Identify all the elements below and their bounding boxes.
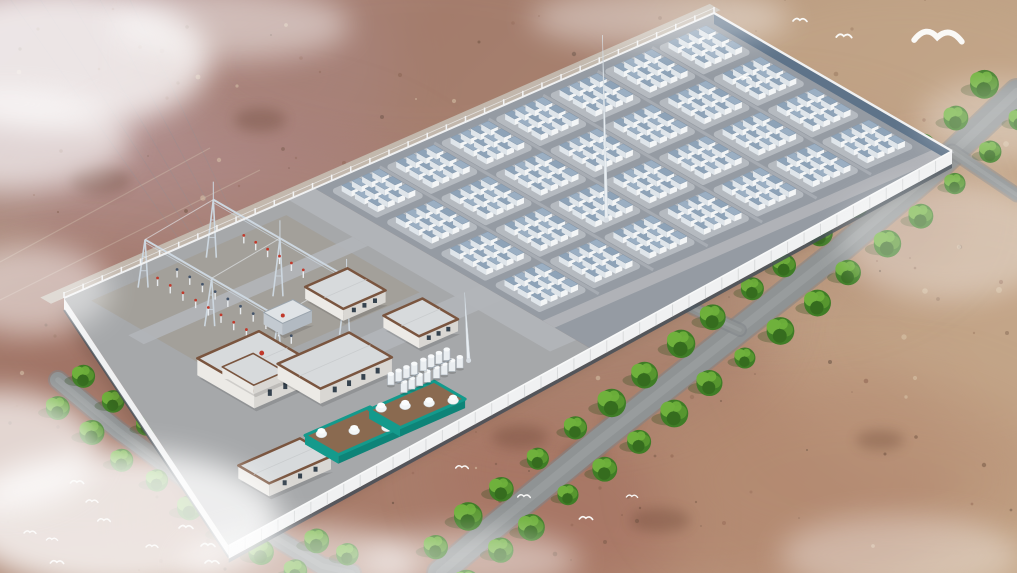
building-window	[427, 335, 431, 340]
storage-tank	[456, 355, 464, 371]
part	[569, 426, 581, 438]
part	[420, 358, 426, 362]
storage-tank-top	[377, 403, 385, 409]
part	[395, 369, 401, 373]
part	[602, 458, 611, 467]
fire-cart	[259, 351, 264, 356]
part	[478, 41, 481, 44]
part	[706, 372, 716, 382]
building-window	[373, 298, 377, 303]
part	[750, 279, 759, 288]
part	[428, 354, 434, 358]
part	[778, 264, 790, 276]
part	[201, 283, 204, 286]
part	[901, 334, 906, 339]
part	[77, 375, 89, 387]
building-window	[446, 327, 450, 332]
part	[169, 284, 172, 287]
part	[573, 418, 582, 427]
part	[884, 453, 887, 456]
storage-tank	[395, 369, 403, 385]
part	[728, 296, 730, 298]
storage-tank	[419, 358, 427, 374]
part	[636, 431, 645, 440]
part	[750, 491, 753, 494]
storage-tank-top	[449, 395, 457, 401]
building-window	[283, 480, 287, 485]
part	[851, 391, 853, 393]
building-window	[437, 331, 441, 336]
part	[220, 313, 223, 316]
part	[226, 298, 229, 301]
part	[598, 486, 601, 489]
building-window	[361, 374, 365, 380]
part	[810, 301, 823, 314]
part	[746, 287, 758, 299]
building-window	[347, 380, 351, 386]
part	[465, 504, 476, 515]
part	[1010, 509, 1013, 512]
part	[217, 158, 221, 162]
part	[834, 72, 839, 77]
part	[466, 358, 471, 363]
part	[156, 277, 159, 280]
storage-tank	[427, 354, 435, 370]
part	[188, 275, 191, 278]
part	[604, 401, 618, 415]
storage-tank	[387, 372, 395, 388]
part	[214, 290, 217, 293]
part	[637, 373, 650, 386]
scene-canvas	[0, 0, 1017, 573]
part	[436, 351, 442, 355]
part	[392, 502, 394, 504]
part	[841, 271, 854, 284]
part	[20, 371, 24, 375]
part	[254, 241, 257, 244]
dark-blotch	[234, 108, 286, 132]
part	[235, 84, 238, 87]
part	[415, 98, 417, 100]
part	[81, 366, 90, 375]
part	[670, 454, 673, 457]
building-window	[333, 387, 337, 393]
storage-tank	[443, 347, 451, 363]
part	[1005, 331, 1009, 335]
part	[720, 400, 722, 402]
part	[239, 305, 242, 308]
part	[971, 503, 974, 506]
transformer-bushing	[281, 314, 285, 318]
part	[814, 291, 824, 301]
part	[57, 211, 59, 213]
part	[710, 306, 720, 316]
part	[973, 332, 975, 334]
part	[278, 255, 281, 258]
part	[678, 331, 689, 342]
part	[319, 71, 321, 73]
part	[495, 463, 497, 465]
building-window	[376, 368, 380, 374]
part	[475, 467, 477, 469]
part	[207, 306, 210, 309]
part	[176, 268, 179, 271]
storage-tank-top	[401, 400, 409, 406]
part	[238, 185, 240, 187]
part	[411, 362, 417, 366]
part	[609, 391, 620, 402]
part	[460, 514, 474, 528]
part	[566, 485, 574, 493]
part	[850, 27, 853, 30]
part	[398, 73, 402, 77]
part	[444, 347, 450, 351]
part	[603, 540, 607, 544]
part	[290, 262, 293, 265]
part	[528, 516, 538, 526]
part	[639, 507, 641, 509]
part	[982, 463, 986, 467]
part	[722, 521, 726, 525]
part	[528, 470, 530, 472]
part	[671, 401, 682, 412]
building-window	[298, 474, 302, 479]
part	[667, 411, 681, 425]
storage-tank-top	[350, 425, 358, 431]
part	[475, 431, 477, 433]
part	[673, 342, 687, 356]
part	[806, 449, 808, 451]
part	[828, 360, 832, 364]
part	[182, 291, 185, 294]
part	[562, 493, 573, 504]
part	[621, 514, 623, 516]
part	[33, 194, 35, 196]
part	[266, 248, 269, 251]
part	[904, 395, 907, 398]
part	[773, 329, 787, 343]
part	[107, 400, 118, 411]
part	[532, 457, 543, 468]
part	[388, 372, 394, 376]
part	[295, 157, 297, 159]
part	[702, 381, 715, 394]
storage-tank-top	[317, 428, 325, 434]
part	[604, 218, 609, 223]
part	[914, 435, 918, 439]
storage-tank	[410, 362, 418, 378]
storage-tank-top	[425, 397, 433, 403]
building-window	[352, 308, 356, 313]
building-window	[362, 303, 366, 308]
part	[299, 56, 303, 60]
part	[642, 363, 652, 373]
part	[654, 455, 657, 458]
part	[252, 312, 255, 315]
part	[147, 155, 149, 157]
part	[232, 321, 235, 324]
part	[596, 376, 601, 381]
part	[194, 299, 197, 302]
part	[777, 319, 788, 330]
part	[571, 524, 574, 527]
part	[690, 395, 694, 399]
part	[288, 167, 290, 169]
part	[695, 501, 697, 503]
part	[598, 467, 610, 479]
part	[499, 478, 508, 487]
part	[245, 328, 248, 331]
part	[706, 315, 719, 328]
part	[535, 449, 543, 457]
storage-tank	[435, 351, 443, 367]
part	[864, 379, 869, 384]
part	[754, 373, 756, 375]
part	[798, 517, 800, 519]
part	[700, 525, 702, 527]
part	[184, 209, 188, 213]
part	[380, 115, 384, 119]
part	[53, 334, 56, 337]
part	[457, 355, 463, 359]
dark-blotch	[856, 430, 904, 450]
building-window	[314, 467, 318, 472]
part	[572, 52, 576, 56]
part	[495, 487, 507, 499]
part	[242, 234, 245, 237]
part	[302, 269, 305, 272]
part	[281, 147, 285, 151]
part	[403, 365, 409, 369]
storage-tank	[402, 365, 410, 381]
part	[742, 349, 750, 357]
aerial-render-scene	[0, 0, 1017, 573]
part	[739, 356, 750, 367]
dark-blotch	[492, 425, 548, 449]
part	[633, 440, 645, 452]
part	[913, 376, 917, 380]
part	[452, 99, 456, 103]
dark-blotch	[630, 508, 690, 532]
part	[412, 472, 415, 475]
part	[511, 21, 515, 25]
